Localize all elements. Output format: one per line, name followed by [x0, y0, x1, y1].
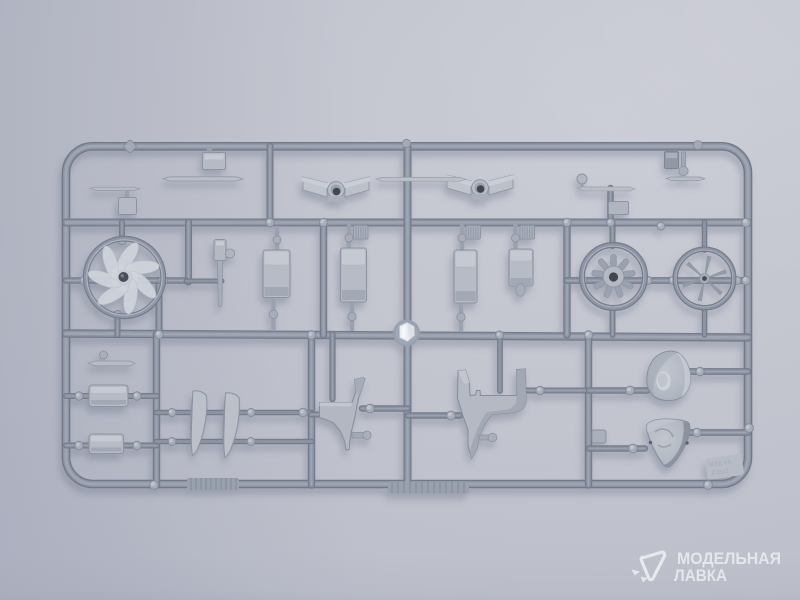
- svg-text:ЛАВКА: ЛАВКА: [674, 566, 727, 585]
